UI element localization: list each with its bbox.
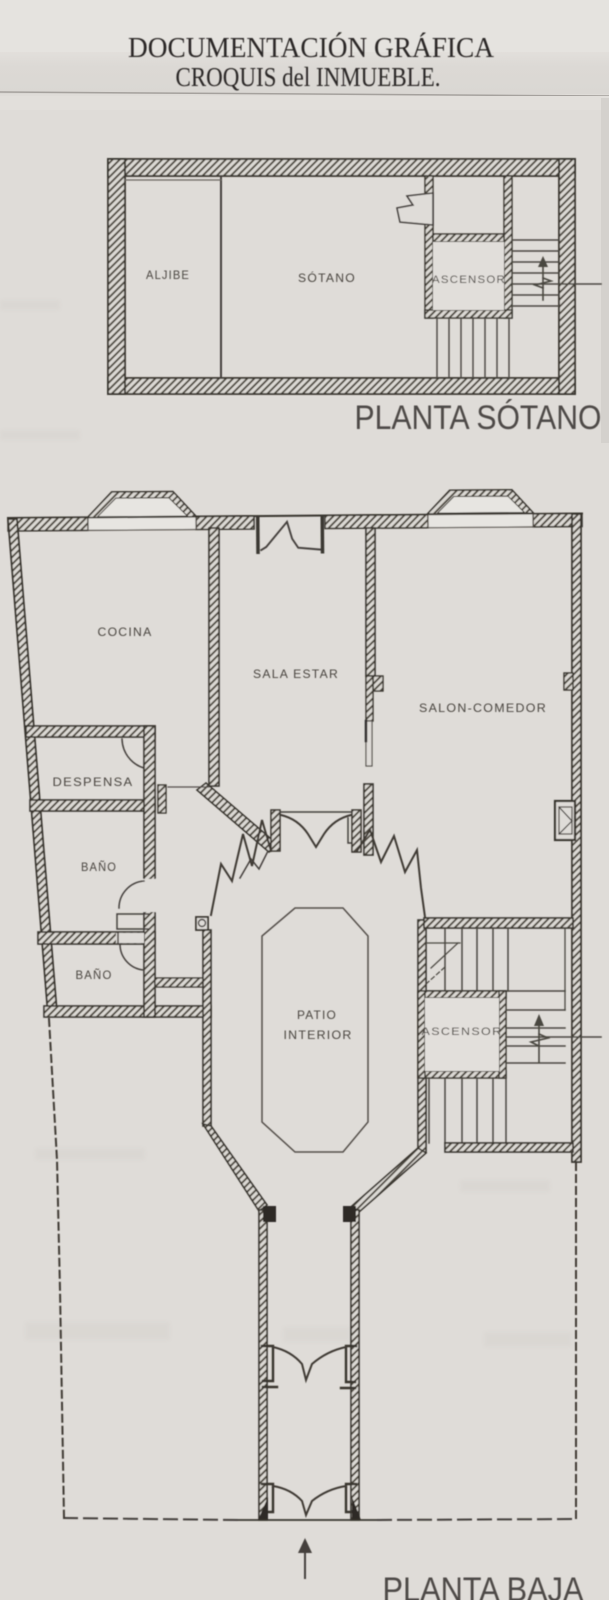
svg-text:PATIO: PATIO — [297, 1008, 337, 1022]
svg-text:COCINA: COCINA — [98, 627, 153, 639]
svg-text:BAÑO: BAÑO — [81, 861, 117, 874]
svg-text:BAÑO: BAÑO — [76, 969, 113, 982]
svg-text:PLANTA SÓTANO: PLANTA SÓTANO — [355, 399, 602, 437]
svg-text:DOCUMENTACIÓN GRÁFICA: DOCUMENTACIÓN GRÁFICA — [128, 31, 494, 64]
svg-text:ALJIBE: ALJIBE — [146, 270, 190, 282]
svg-text:SALA ESTAR: SALA ESTAR — [253, 669, 339, 681]
svg-text:PLANTA BAJA: PLANTA BAJA — [383, 1571, 584, 1600]
svg-text:DESPENSA: DESPENSA — [53, 777, 134, 789]
svg-text:ASCENSOR: ASCENSOR — [432, 274, 506, 286]
svg-text:INTERIOR: INTERIOR — [284, 1028, 353, 1042]
svg-text:SALON-COMEDOR: SALON-COMEDOR — [419, 703, 547, 715]
svg-text:ASCENSOR: ASCENSOR — [422, 1026, 503, 1038]
svg-text:CROQUIS del INMUEBLE.: CROQUIS del INMUEBLE. — [176, 62, 441, 92]
svg-text:SÓTANO: SÓTANO — [298, 272, 356, 285]
